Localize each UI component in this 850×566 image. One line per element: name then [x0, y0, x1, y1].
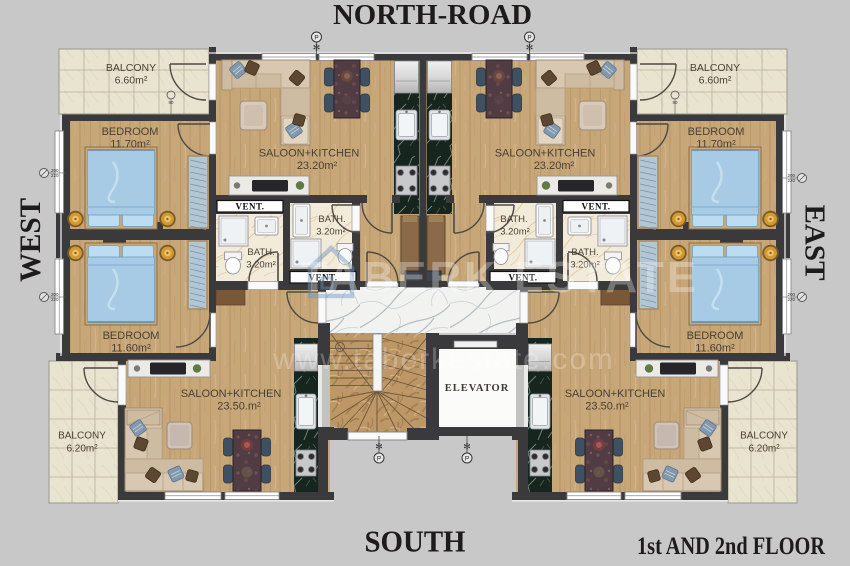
svg-text:SALOON+KITCHEN: SALOON+KITCHEN: [565, 388, 666, 400]
svg-text:✻: ✻: [313, 43, 321, 53]
svg-text:11.70m²: 11.70m²: [696, 139, 736, 151]
svg-text:ELEVATOR: ELEVATOR: [445, 383, 510, 394]
svg-text:3.20m²: 3.20m²: [500, 227, 530, 238]
svg-text:P: P: [377, 456, 381, 463]
svg-text:P: P: [465, 456, 469, 463]
svg-text:23.20m²: 23.20m²: [534, 160, 575, 172]
svg-text:SOUTH: SOUTH: [365, 524, 466, 559]
svg-text:TABERK ESTATE: TABERK ESTATE: [301, 253, 699, 302]
svg-text:VENT.: VENT.: [581, 202, 610, 212]
svg-text:VENT.: VENT.: [235, 202, 264, 212]
svg-text:SALOON+KITCHEN: SALOON+KITCHEN: [181, 388, 282, 400]
svg-text:11.60m²: 11.60m²: [695, 343, 735, 355]
svg-text:BEDROOM: BEDROOM: [687, 330, 744, 342]
svg-text:3.20m²: 3.20m²: [246, 260, 276, 271]
svg-text:3.20m²: 3.20m²: [316, 227, 346, 238]
svg-text:www.taberkestate.com: www.taberkestate.com: [272, 343, 615, 376]
svg-text:BEDROOM: BEDROOM: [102, 126, 159, 138]
svg-text:BATH.: BATH.: [247, 247, 274, 258]
svg-text:SALOON+KITCHEN: SALOON+KITCHEN: [495, 148, 596, 160]
svg-text:6.60m²: 6.60m²: [699, 75, 732, 87]
svg-text:✻: ✻: [526, 43, 534, 53]
svg-text:6.20m²: 6.20m²: [66, 444, 98, 455]
svg-text:23.20m²: 23.20m²: [297, 160, 338, 172]
svg-text:BATH.: BATH.: [500, 214, 527, 225]
svg-text:6.60m²: 6.60m²: [115, 75, 148, 87]
svg-text:BEDROOM: BEDROOM: [103, 330, 160, 342]
svg-text:11.70m²: 11.70m²: [110, 139, 150, 151]
svg-text:SALOON+KITCHEN: SALOON+KITCHEN: [259, 148, 360, 160]
svg-text:BALCONY: BALCONY: [740, 431, 788, 442]
svg-text:BATH.: BATH.: [318, 214, 345, 225]
svg-text:1st AND 2nd FLOOR: 1st AND 2nd FLOOR: [637, 533, 826, 560]
svg-text:23.50.m²: 23.50.m²: [585, 401, 629, 413]
svg-text:11.60m²: 11.60m²: [111, 343, 151, 355]
svg-text:220: 220: [51, 297, 59, 302]
svg-text:6.20m²: 6.20m²: [748, 444, 780, 455]
svg-text:WEST: WEST: [14, 198, 47, 282]
svg-text:BEDROOM: BEDROOM: [688, 126, 745, 138]
svg-text:✻: ✻: [463, 442, 471, 452]
svg-text:23.50.m²: 23.50.m²: [217, 401, 261, 413]
svg-text:EAST: EAST: [799, 205, 831, 281]
svg-text:BALCONY: BALCONY: [106, 62, 156, 74]
svg-text:BALCONY: BALCONY: [58, 431, 106, 442]
svg-text:P: P: [527, 35, 531, 42]
svg-text:P: P: [314, 35, 318, 42]
svg-text:NORTH-ROAD: NORTH-ROAD: [333, 0, 532, 31]
svg-text:220: 220: [51, 173, 59, 178]
svg-text:220: 220: [787, 178, 795, 183]
svg-text:BALCONY: BALCONY: [690, 62, 740, 74]
svg-text:✻: ✻: [375, 442, 383, 452]
svg-text:220: 220: [787, 297, 795, 302]
